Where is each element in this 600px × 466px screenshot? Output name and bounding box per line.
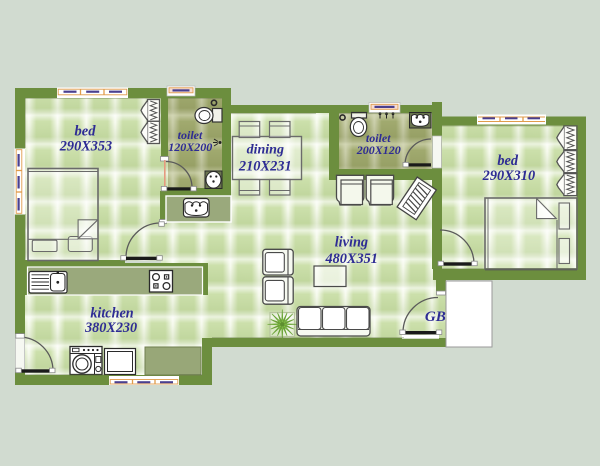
svg-text:290X353: 290X353 <box>59 139 112 155</box>
svg-text:200X120: 200X120 <box>356 143 401 157</box>
svg-text:dining: dining <box>247 143 284 158</box>
svg-text:210X231: 210X231 <box>238 159 292 175</box>
svg-text:kitchen: kitchen <box>90 305 133 321</box>
svg-text:480X351: 480X351 <box>324 251 377 267</box>
svg-text:living: living <box>335 234 368 250</box>
svg-text:bed: bed <box>497 153 518 169</box>
svg-text:GB: GB <box>425 309 446 325</box>
svg-text:120X200: 120X200 <box>168 140 212 154</box>
svg-text:290X310: 290X310 <box>482 168 535 184</box>
svg-text:bed: bed <box>75 124 97 140</box>
svg-text:380X230: 380X230 <box>84 320 137 336</box>
